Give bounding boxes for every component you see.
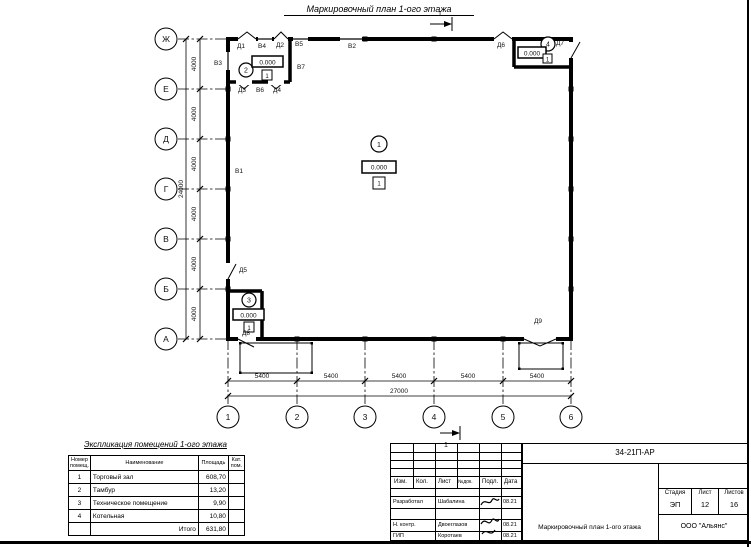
tb-col-kol: Кол. <box>416 479 428 486</box>
floor-plan: 4000 4000 4000 4000 4000 4000 24000 5400… <box>0 0 751 460</box>
sheet-label: Лист <box>692 490 718 497</box>
tag-d2: Д2 <box>276 42 284 49</box>
svg-text:А: А <box>163 334 169 344</box>
dim-bay-v: 4000 <box>191 256 198 271</box>
tb-name-2: Коротаев <box>438 533 462 540</box>
tb-date-1: 08.21 <box>503 522 517 529</box>
svg-text:4: 4 <box>432 412 437 422</box>
tb-col-data: Дата <box>504 479 517 486</box>
tb-role-2: ГИП <box>393 533 404 540</box>
col-axis-labels: 1 2 3 4 5 6 <box>226 412 574 422</box>
tag-d3: Д3 <box>238 87 246 94</box>
tb-col-podl: Подл. <box>482 479 498 486</box>
col-axis-bubbles <box>217 406 582 428</box>
tag-v7: В7 <box>297 64 305 71</box>
tb-col-izm: Изм. <box>394 479 407 486</box>
svg-text:3: 3 <box>363 412 368 422</box>
tag-v4: В4 <box>258 43 266 50</box>
sheet-frame-bottom <box>0 541 751 544</box>
table-row: 1 Торговый зал 608,70 <box>69 471 245 484</box>
dim-bay-v: 4000 <box>191 56 198 71</box>
tag-d5: Д5 <box>239 267 247 274</box>
tag-d7: Д7 <box>556 40 564 47</box>
tag-v2: В2 <box>348 43 356 50</box>
svg-text:1: 1 <box>377 140 381 149</box>
dim-bay-v: 4000 <box>191 306 198 321</box>
svg-text:3: 3 <box>247 298 251 305</box>
svg-text:Г: Г <box>164 184 169 194</box>
svg-text:1: 1 <box>438 11 442 18</box>
dim-bay-h: 5400 <box>530 373 545 380</box>
tag-v6: В6 <box>256 87 264 94</box>
tb-date-2: 08.21 <box>503 533 517 540</box>
total-row: Итого 631,80 <box>69 523 245 536</box>
tag-d8: Д8 <box>242 330 250 337</box>
svg-text:Е: Е <box>163 84 169 94</box>
table-row: 4 Котельная 10,80 <box>69 510 245 523</box>
explication-header-row: Номер помещ. Наименование Площадь Кат. п… <box>69 456 245 471</box>
dim-bay-h: 5400 <box>255 373 270 380</box>
room-num: 4 <box>69 510 91 523</box>
porch-corner-marks <box>239 342 564 374</box>
stage-value: ЭП <box>659 501 691 508</box>
total-label: Итого <box>90 523 198 536</box>
total-area: 631,80 <box>198 523 228 536</box>
explication-title: Экспликация помещений 1-ого этажа <box>70 440 241 449</box>
svg-text:2: 2 <box>295 412 300 422</box>
drawing-sheet: Маркировочный план 1-ого этажа <box>0 0 751 547</box>
tag-d4: Д4 <box>273 87 281 94</box>
tb-name-0: Шабалина <box>438 499 465 506</box>
room-num: 1 <box>69 471 91 484</box>
svg-text:1: 1 <box>226 412 231 422</box>
svg-text:6: 6 <box>569 412 574 422</box>
tag-v1: В1 <box>235 168 243 175</box>
section-mark-top: 1 <box>430 11 452 31</box>
dim-bay-h: 5400 <box>392 373 407 380</box>
explication-table: Номер помещ. Наименование Площадь Кат. п… <box>68 455 245 536</box>
room-cat <box>228 510 244 523</box>
col-header-area: Площадь <box>198 456 228 471</box>
svg-text:0.000: 0.000 <box>259 60 276 67</box>
sheet-frame-right <box>747 0 749 547</box>
room-area: 13,20 <box>198 484 228 497</box>
dim-bay-v: 4000 <box>191 206 198 221</box>
dim-total-h: 27000 <box>390 388 408 395</box>
svg-text:4: 4 <box>546 42 550 49</box>
room-cat <box>228 497 244 510</box>
room-cat <box>228 471 244 484</box>
room-name: Котельная <box>90 510 198 523</box>
dim-bay-h: 5400 <box>461 373 476 380</box>
col-header-num: Номер помещ. <box>69 456 91 471</box>
svg-text:Ж: Ж <box>162 34 170 44</box>
doc-code: 34-21П-АР <box>521 449 749 456</box>
room-name: Техническое помещение <box>90 497 198 510</box>
svg-text:Б: Б <box>163 284 169 294</box>
dim-bay-v: 4000 <box>191 156 198 171</box>
room-area: 608,70 <box>198 471 228 484</box>
dim-bay-h: 5400 <box>324 373 339 380</box>
svg-text:В: В <box>163 234 169 244</box>
dim-total-v: 24000 <box>178 180 185 198</box>
room-cat <box>228 484 244 497</box>
tag-v3: В3 <box>214 60 222 67</box>
dim-bay-v: 4000 <box>191 106 198 121</box>
table-row: 2 Тамбур 13,20 <box>69 484 245 497</box>
room-num: 3 <box>69 497 91 510</box>
tag-v5: В5 <box>295 41 303 48</box>
tb-name-1: Двоеглазов <box>438 522 467 529</box>
tb-date-0: 08.21 <box>503 499 517 506</box>
tb-role-1: Н. контр. <box>393 522 416 529</box>
col-header-cat: Кат. пом. <box>228 456 244 471</box>
svg-text:5: 5 <box>501 412 506 422</box>
room-area: 9,90 <box>198 497 228 510</box>
tag-d9: Д9 <box>534 318 542 325</box>
room-name: Тамбур <box>90 484 198 497</box>
svg-text:Д: Д <box>163 134 169 144</box>
stage-label: Стадия <box>659 490 691 497</box>
room-num: 2 <box>69 484 91 497</box>
porches <box>240 343 563 373</box>
room-name: Торговый зал <box>90 471 198 484</box>
sheets-label: Листов <box>719 490 749 497</box>
title-block: Изм. Кол. Лист №док. Подл. Дата Разработ… <box>390 443 748 541</box>
tag-d1: Д1 <box>237 43 245 50</box>
table-row: 3 Техническое помещение 9,90 <box>69 497 245 510</box>
tb-col-ndok: №док. <box>458 479 473 486</box>
company-name: ООО "Альянс" <box>659 523 749 530</box>
room-area: 10,80 <box>198 510 228 523</box>
sheet-value: 12 <box>692 501 718 508</box>
svg-text:0.000: 0.000 <box>524 51 541 58</box>
tb-role-0: Разработал <box>393 499 423 506</box>
col-header-name: Наименование <box>90 456 198 471</box>
tag-d6: Д6 <box>497 42 505 49</box>
tb-col-list: Лист <box>438 479 451 486</box>
tb-drawing-title: Маркировочный план 1-ого этажа <box>523 524 656 531</box>
signature-squiggles <box>479 494 501 540</box>
sheets-value: 16 <box>719 501 749 508</box>
svg-text:0.000: 0.000 <box>240 313 257 320</box>
svg-text:2: 2 <box>244 68 248 75</box>
svg-text:0.000: 0.000 <box>371 165 388 172</box>
